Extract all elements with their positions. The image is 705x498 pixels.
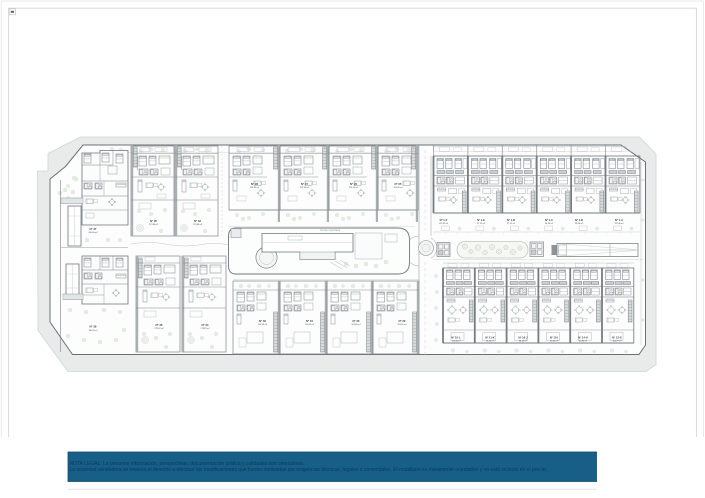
svg-text:Nº 34: Nº 34 <box>202 323 209 327</box>
svg-text:Nº 1-F: Nº 1-F <box>440 218 448 222</box>
svg-text:201,90 m²: 201,90 m² <box>300 186 309 189</box>
svg-text:La sociedad vendedora se reser: La sociedad vendedora se reserva el dere… <box>70 467 547 473</box>
svg-text:PISCINA COMUNITARIA: PISCINA COMUNITARIA <box>320 229 341 232</box>
svg-text:Nº 35: Nº 35 <box>150 219 157 223</box>
svg-text:Nº 36: Nº 36 <box>156 323 163 327</box>
svg-text:202,05 m²: 202,05 m² <box>351 323 360 326</box>
svg-text:104,77 m²: 104,77 m² <box>612 340 621 343</box>
svg-text:NOTA LEGAL: La presente inform: NOTA LEGAL: La presente información, per… <box>70 461 305 467</box>
svg-text:Nº 37: Nº 37 <box>90 227 97 231</box>
svg-text:Nº 30: Nº 30 <box>353 319 360 323</box>
svg-text:Nº 32: Nº 32 <box>259 319 266 323</box>
svg-text:54,45 m²: 54,45 m² <box>519 340 527 343</box>
svg-text:56,30 m²: 56,30 m² <box>575 222 583 225</box>
svg-text:Nº 15-I: Nº 15-I <box>550 336 559 340</box>
svg-text:Nº 1-B: Nº 1-B <box>575 218 583 222</box>
svg-text:56,30 m²: 56,30 m² <box>545 222 553 225</box>
svg-text:330,42 m²: 330,42 m² <box>88 329 97 332</box>
svg-text:202,05 m²: 202,05 m² <box>397 323 406 326</box>
svg-text:201,90 m²: 201,90 m² <box>393 186 402 189</box>
svg-text:Nº 29: Nº 29 <box>399 319 406 323</box>
svg-text:Nº 16-J: Nº 16-J <box>518 336 528 340</box>
svg-text:122,40 m²: 122,40 m² <box>614 222 623 225</box>
svg-text:Nº 1-E: Nº 1-E <box>477 218 485 222</box>
svg-text:273,87 m²: 273,87 m² <box>200 327 209 330</box>
svg-text:57,12 m²: 57,12 m² <box>507 222 515 225</box>
svg-text:Nº 10-L: Nº 10-L <box>451 336 461 340</box>
svg-text:122,92 m²: 122,92 m² <box>439 222 448 225</box>
svg-text:Nº 14-H: Nº 14-H <box>578 336 588 340</box>
svg-text:Nº 25: Nº 25 <box>395 182 402 186</box>
svg-text:Nº 38: Nº 38 <box>90 325 97 329</box>
svg-text:201,90 m²: 201,90 m² <box>349 186 358 189</box>
svg-text:273,84 m²: 273,84 m² <box>149 223 158 226</box>
svg-text:Nº 11-K: Nº 11-K <box>485 336 494 340</box>
svg-text:54,45 m²: 54,45 m² <box>486 340 494 343</box>
svg-text:273,87 m²: 273,87 m² <box>154 327 163 330</box>
svg-text:Nº 1-A: Nº 1-A <box>615 218 623 222</box>
svg-text:Nº 31: Nº 31 <box>306 319 313 323</box>
svg-text:52,85 m²: 52,85 m² <box>579 340 587 343</box>
svg-text:202,05 m²: 202,05 m² <box>258 323 267 326</box>
svg-text:Nº 13-G: Nº 13-G <box>612 336 622 340</box>
svg-text:273,84 m²: 273,84 m² <box>193 223 202 226</box>
svg-text:143,36 m²: 143,36 m² <box>451 340 460 343</box>
svg-text:201,90 m²: 201,90 m² <box>250 186 259 189</box>
svg-text:Nº 1-C: Nº 1-C <box>545 218 553 222</box>
svg-text:202,05 m²: 202,05 m² <box>305 323 314 326</box>
svg-text:57,12 m²: 57,12 m² <box>477 222 485 225</box>
svg-text:330,60 m²: 330,60 m² <box>88 231 97 234</box>
svg-text:Nº 33: Nº 33 <box>194 219 201 223</box>
svg-text:Nº 1-D: Nº 1-D <box>507 218 515 222</box>
svg-text:52,85 m²: 52,85 m² <box>550 340 558 343</box>
